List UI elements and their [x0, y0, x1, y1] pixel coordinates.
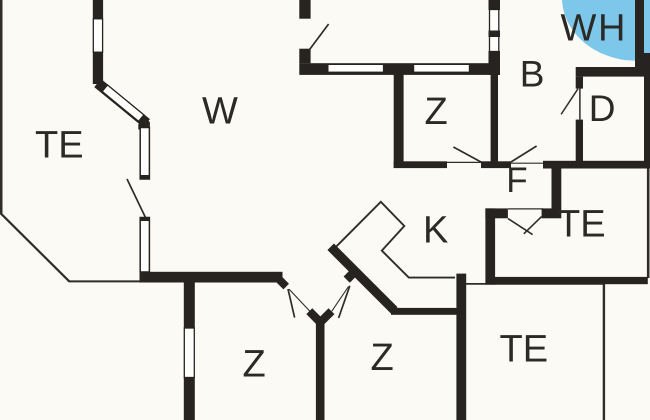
- svg-text:TE: TE: [35, 125, 84, 167]
- svg-text:F: F: [506, 161, 527, 200]
- svg-text:B: B: [520, 54, 545, 95]
- svg-text:Z: Z: [243, 344, 266, 386]
- svg-text:Z: Z: [371, 337, 394, 379]
- svg-text:WH: WH: [561, 8, 628, 50]
- svg-text:TE: TE: [500, 329, 549, 371]
- svg-text:K: K: [423, 209, 448, 251]
- svg-text:TE: TE: [557, 204, 606, 246]
- svg-text:Z: Z: [425, 91, 448, 133]
- svg-text:W: W: [202, 91, 238, 133]
- svg-text:D: D: [589, 88, 616, 129]
